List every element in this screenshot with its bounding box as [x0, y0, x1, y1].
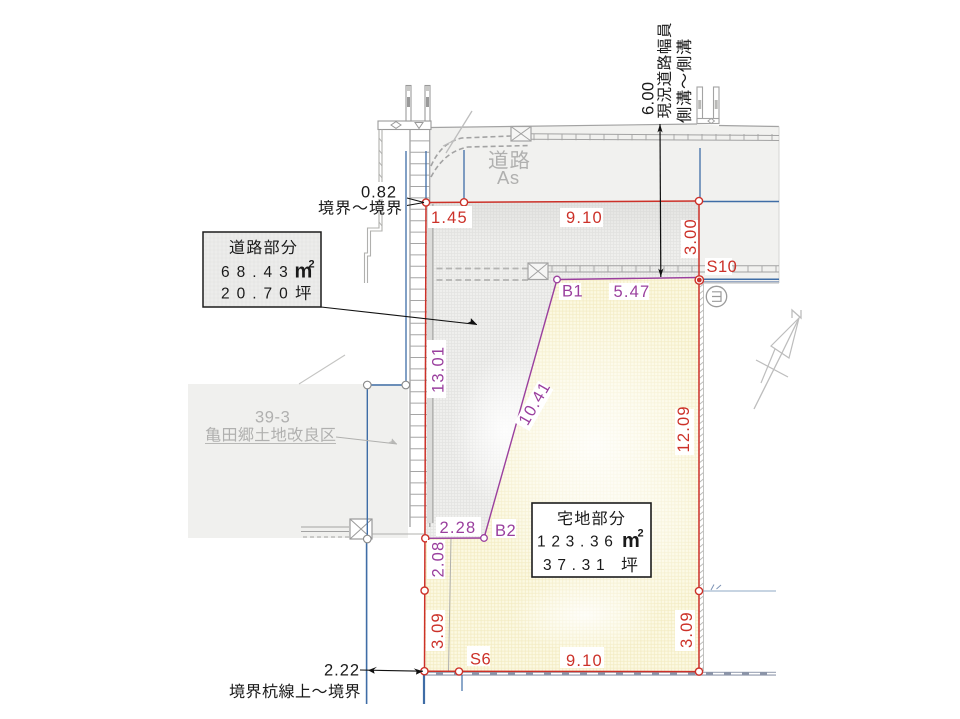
svg-text:2.08: 2.08 — [430, 541, 448, 578]
svg-text:2.28: 2.28 — [440, 519, 477, 537]
svg-text:9.10: 9.10 — [566, 209, 603, 227]
svg-text:B1: B1 — [562, 283, 583, 301]
svg-text:1.45: 1.45 — [431, 209, 468, 227]
svg-text:B2: B2 — [495, 522, 516, 540]
svg-text:3.09: 3.09 — [429, 612, 447, 649]
svg-text:3.09: 3.09 — [678, 611, 696, 648]
svg-text:9.10: 9.10 — [566, 652, 603, 670]
svg-text:39-3: 39-3 — [255, 409, 290, 427]
svg-text:2: 2 — [309, 259, 315, 271]
svg-text:0.82: 0.82 — [361, 184, 397, 202]
svg-text:As: As — [497, 167, 520, 188]
svg-text:5.47: 5.47 — [614, 283, 651, 301]
svg-text:68.43: 68.43 — [221, 264, 295, 281]
svg-text:6.00: 6.00 — [640, 82, 658, 115]
svg-text:2: 2 — [638, 528, 644, 540]
svg-text:3.00: 3.00 — [682, 218, 700, 255]
svg-text:123.36: 123.36 — [537, 534, 619, 551]
svg-text:20.70: 20.70 — [221, 286, 295, 303]
svg-text:13.01: 13.01 — [430, 346, 448, 393]
svg-text:12.09: 12.09 — [675, 405, 693, 452]
svg-text:2.22: 2.22 — [324, 662, 360, 680]
svg-text:37.31: 37.31 — [543, 557, 610, 574]
svg-text:S6: S6 — [470, 651, 491, 669]
svg-text:S10: S10 — [707, 258, 738, 276]
